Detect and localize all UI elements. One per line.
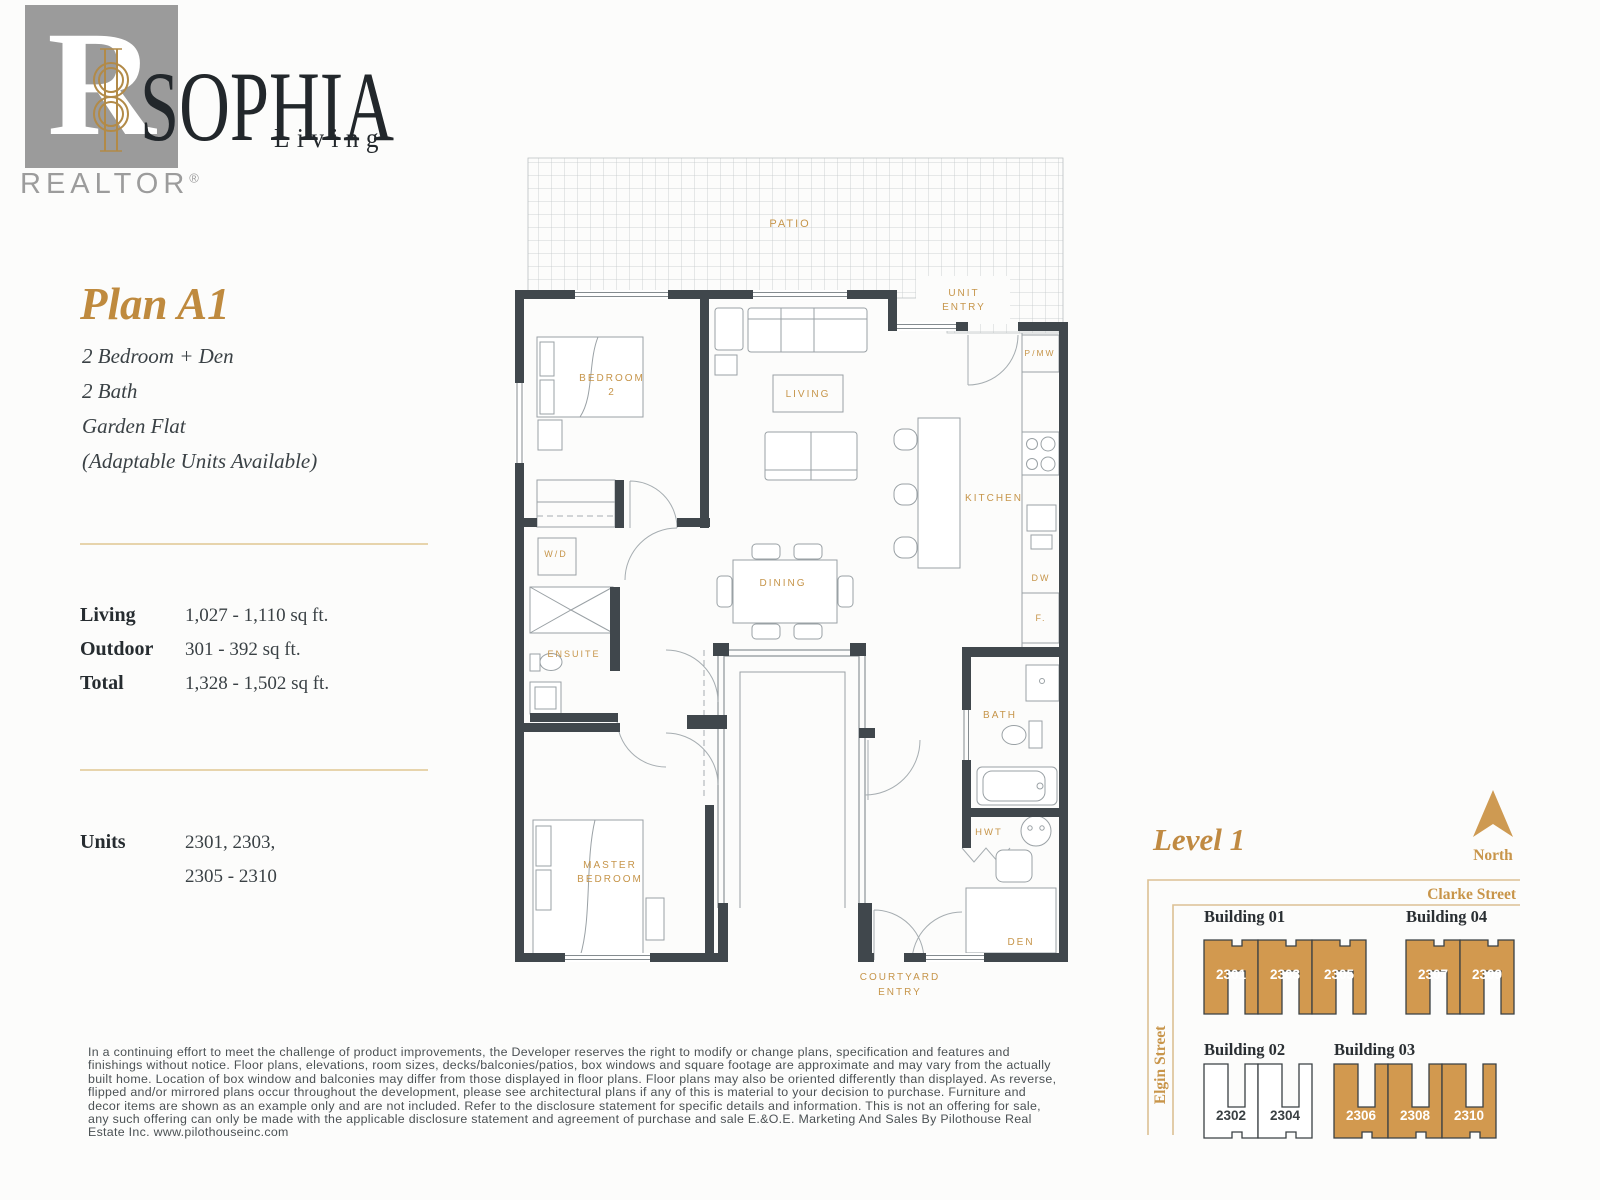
room-label-ensuite: ENSUITE [547, 649, 600, 659]
courtyard-entry-door [874, 910, 924, 960]
room-label-courtyard: COURTYARD [860, 972, 940, 983]
dining-chair [794, 544, 822, 559]
bar-stool [894, 429, 917, 450]
dining-chair [752, 624, 780, 639]
stat-label: Living [80, 604, 136, 627]
dining-chair [717, 576, 732, 607]
room-label-bedroom2: BEDROOM [579, 373, 645, 384]
bedroom2-door [630, 481, 677, 528]
wd-door [625, 528, 677, 580]
building-01: 2301 2303 2305 [1204, 940, 1366, 1014]
divider-line [80, 769, 428, 771]
level-title: Level 1 [1152, 822, 1245, 857]
divider-line [80, 543, 428, 545]
room-label-dw: DW [1032, 573, 1051, 583]
units-value: 2301, 2303, [185, 832, 275, 854]
kitchen-sink [1027, 505, 1056, 531]
plan-title: Plan A1 [80, 278, 230, 330]
stat-label: Outdoor [80, 638, 153, 661]
room-label-patio: PATIO [769, 218, 810, 230]
pillow [540, 380, 554, 414]
unit-entry-door [968, 335, 1018, 385]
map-unit: 2301 [1216, 967, 1247, 982]
bar-stool [894, 484, 917, 505]
map-unit: 2306 [1346, 1108, 1377, 1123]
bench [646, 898, 664, 940]
room-label-master: MASTER [583, 860, 637, 871]
map-unit: 2302 [1216, 1108, 1246, 1123]
map-unit: 2305 [1324, 967, 1355, 982]
room-label-bath: BATH [983, 710, 1017, 721]
courtyard-right-door-arc [865, 740, 920, 795]
dining-chair [838, 576, 853, 607]
plan-feature: 2 Bath [82, 379, 137, 404]
building-04: 2307 2309 [1406, 940, 1514, 1014]
room-label-pmw: P/MW [1024, 348, 1055, 358]
stat-value: 1,328 - 1,502 sq ft. [185, 673, 329, 695]
plan-feature: Garden Flat [82, 414, 186, 439]
pillow [536, 826, 551, 866]
courtyard-left-door-lower [666, 733, 718, 785]
pillow [536, 870, 551, 910]
hot-water-tank [1021, 816, 1051, 846]
units-value: 2305 - 2310 [185, 866, 277, 888]
stat-value: 301 - 392 sq ft. [185, 639, 301, 661]
registered-mark: ® [189, 170, 204, 185]
building-label: Building 04 [1406, 907, 1487, 926]
pillow [540, 342, 554, 376]
room-label-kitchen: KITCHEN [965, 493, 1023, 504]
disclaimer-text: In a continuing effort to meet the chall… [88, 1046, 1060, 1140]
dining-table [733, 560, 837, 623]
courtyard-left-door-upper [666, 650, 718, 702]
map-unit: 2309 [1472, 967, 1502, 982]
dining-chair [794, 624, 822, 639]
plan-feature: 2 Bedroom + Den [82, 344, 234, 369]
brand-tagline: Living [274, 123, 386, 153]
plan-feature: (Adaptable Units Available) [82, 449, 317, 474]
building-label: Building 02 [1204, 1040, 1285, 1059]
building-label: Building 03 [1334, 1040, 1415, 1059]
sophia-knot-ornament-icon [80, 46, 142, 154]
building-03: 2306 2308 2310 [1334, 1064, 1496, 1138]
brand-wordmark: SOPHIA Living [138, 40, 438, 160]
realtor-wordmark: REALTOR® [20, 168, 204, 201]
unit-entry-label-patch [916, 276, 1010, 324]
room-label-wd: W/D [544, 549, 568, 559]
courtyard-glazing-inner [724, 656, 859, 908]
room-label-courtyard: ENTRY [878, 987, 922, 998]
dining-chair [752, 544, 780, 559]
master-door [617, 718, 666, 767]
north-label: North [1473, 847, 1513, 864]
kitchen-sink-small [1031, 535, 1052, 549]
floor-plan-drawing: PATIO UNIT ENTRY BEDROOM 2 LIVING P/MW K… [500, 150, 1070, 1012]
closet [537, 480, 615, 527]
nightstand [538, 420, 562, 450]
map-unit: 2308 [1400, 1108, 1431, 1123]
street-label-elgin: Elgin Street [1152, 1025, 1169, 1104]
map-unit: 2304 [1270, 1108, 1301, 1123]
room-label-unit-entry: UNIT [948, 288, 979, 299]
toilet-tank [1029, 721, 1042, 748]
building-02: 2302 2304 [1204, 1064, 1312, 1138]
room-label-master: BEDROOM [577, 874, 643, 885]
stat-value: 1,027 - 1,110 sq ft. [185, 605, 328, 627]
site-map: Level 1 North Clarke Street Elgin Street… [1128, 772, 1538, 1162]
bar-stool [894, 537, 917, 558]
desk-chair [996, 850, 1032, 882]
room-label-dining: DINING [760, 578, 807, 589]
room-label-unit-entry: ENTRY [942, 302, 986, 313]
room-label-hwt: HWT [975, 827, 1003, 838]
sofa [748, 308, 867, 352]
building-label: Building 01 [1204, 907, 1285, 926]
map-unit: 2310 [1454, 1108, 1484, 1123]
street-label-clarke: Clarke Street [1427, 886, 1517, 903]
room-label-den: DEN [1007, 937, 1034, 948]
kitchen-island [918, 418, 960, 568]
map-unit: 2303 [1270, 967, 1301, 982]
room-label-bedroom2: 2 [608, 387, 616, 398]
armchair [715, 308, 743, 350]
map-unit: 2307 [1418, 967, 1448, 982]
room-label-fridge: F. [1035, 613, 1046, 623]
north-arrow-icon [1473, 790, 1513, 837]
toilet-tank [530, 654, 540, 671]
stat-label: Total [80, 672, 124, 695]
toilet [1002, 726, 1026, 745]
units-label: Units [80, 831, 126, 854]
room-label-living: LIVING [786, 389, 831, 400]
side-table [715, 355, 737, 375]
courtyard-walkway-line [740, 672, 845, 908]
